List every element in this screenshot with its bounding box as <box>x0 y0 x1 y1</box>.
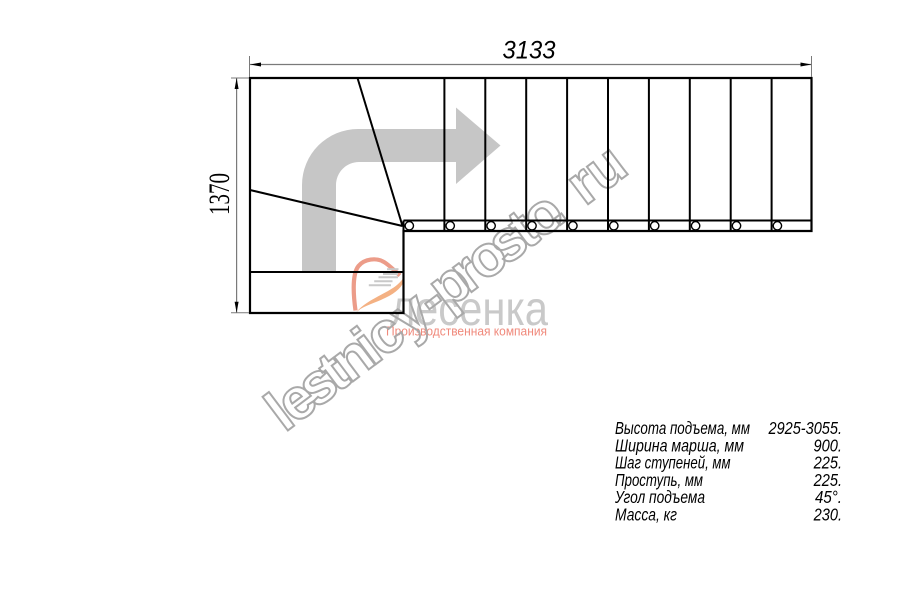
svg-text:230.: 230. <box>813 504 842 524</box>
svg-text:3133: 3133 <box>503 37 556 65</box>
svg-text:1370: 1370 <box>203 173 236 215</box>
svg-text:Масса, кг: Масса, кг <box>615 504 677 524</box>
